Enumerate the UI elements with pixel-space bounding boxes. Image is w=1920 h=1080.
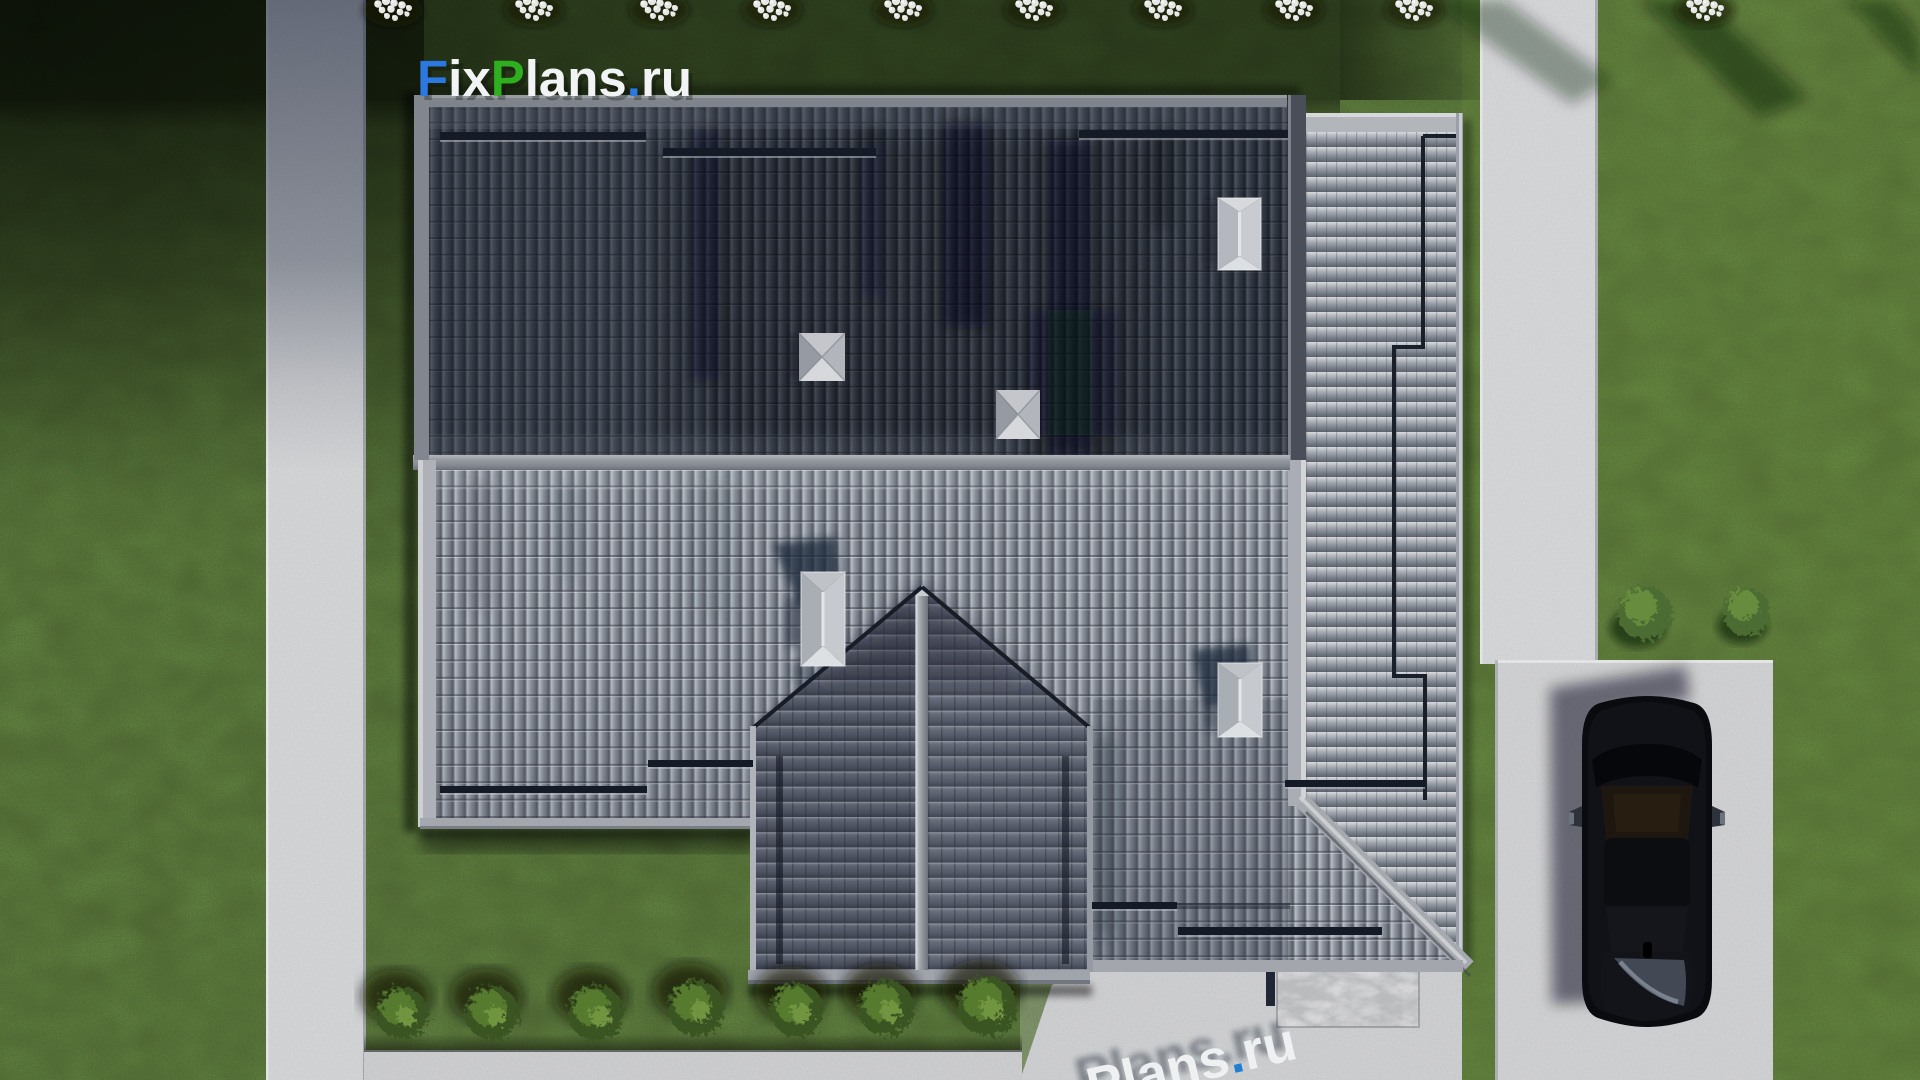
svg-text:FixPlans.ru: FixPlans.ru bbox=[417, 50, 692, 107]
